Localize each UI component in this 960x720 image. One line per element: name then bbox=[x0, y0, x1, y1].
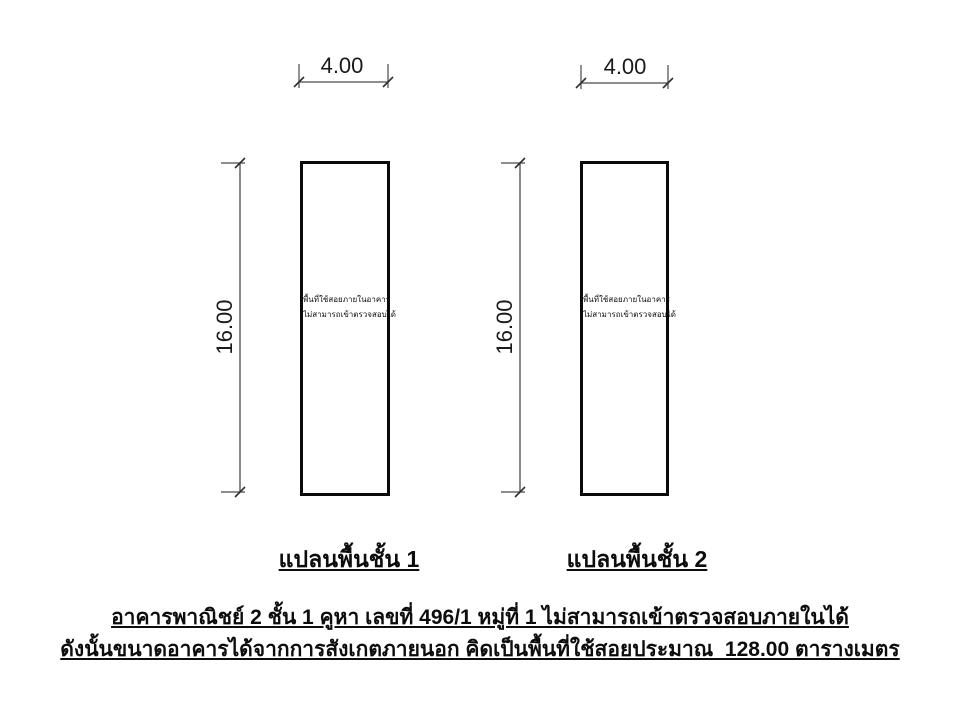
bottom-note-line2: ดังนั้นขนาดอาคารได้จากการสังเกตภายนอก คิ… bbox=[0, 635, 960, 665]
plan1-interior-note-line1: พื้นที่ใช้สอยภายในอาคาร bbox=[303, 292, 387, 307]
plan2-height-dimension-label: 16.00 bbox=[492, 267, 516, 387]
plan1-width-dimension-label: 4.00 bbox=[302, 53, 382, 79]
floor-plan-sheet: 4.00 16.00 4.00 16.00 พื้นที่ใช้สอยภายใน… bbox=[0, 0, 960, 720]
plan1-interior-note-line2: ไม่สามารถเข้าตรวจสอบได้ bbox=[303, 307, 387, 322]
plan2-width-dimension-label: 4.00 bbox=[585, 54, 665, 80]
plan2-interior-note-line1: พื้นที่ใช้สอยภายในอาคาร bbox=[583, 292, 666, 307]
plan2-interior-note-line2: ไม่สามารถเข้าตรวจสอบได้ bbox=[583, 307, 666, 322]
bottom-note-line1: อาคารพาณิชย์ 2 ชั้น 1 คูหา เลขที่ 496/1 … bbox=[0, 603, 960, 633]
plan2-interior-note: พื้นที่ใช้สอยภายในอาคาร ไม่สามารถเข้าตรว… bbox=[583, 292, 666, 322]
plan1-interior-note: พื้นที่ใช้สอยภายในอาคาร ไม่สามารถเข้าตรว… bbox=[303, 292, 387, 322]
plan1-building-outline: พื้นที่ใช้สอยภายในอาคาร ไม่สามารถเข้าตรว… bbox=[300, 161, 390, 496]
plan1-caption: แปลนพื้นชั้น 1 bbox=[264, 542, 434, 578]
plan1-height-dimension-label: 16.00 bbox=[212, 267, 236, 387]
plan2-building-outline: พื้นที่ใช้สอยภายในอาคาร ไม่สามารถเข้าตรว… bbox=[580, 161, 669, 496]
plan2-caption: แปลนพื้นชั้น 2 bbox=[552, 542, 722, 578]
